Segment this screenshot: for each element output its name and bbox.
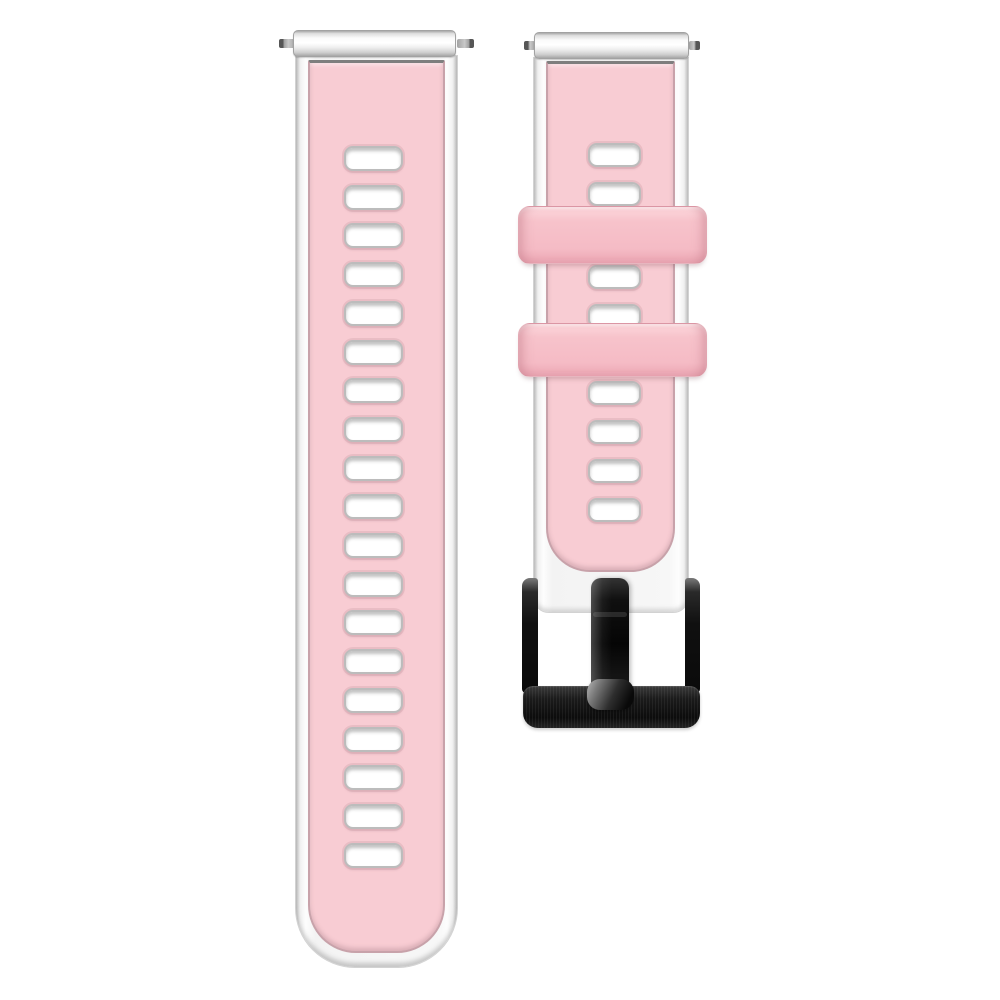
strap-vent-hole [344, 262, 403, 287]
strap-vent-hole [588, 143, 641, 167]
keeper-loop [518, 323, 707, 377]
strap-vent-hole [344, 572, 403, 597]
strap-vent-hole [344, 301, 403, 326]
strap-vent-hole [344, 804, 403, 829]
strap-vent-hole [344, 456, 403, 481]
strap-vent-hole [344, 223, 403, 248]
strap-vent-hole [344, 765, 403, 790]
strap-vent-hole [588, 265, 641, 289]
strap-vent-hole [344, 727, 403, 752]
strap-vent-hole [344, 340, 403, 365]
strap-vent-hole [344, 533, 403, 558]
right-strap [533, 32, 689, 732]
strap-vent-hole [344, 378, 403, 403]
left-strap [295, 30, 458, 970]
strap-vent-hole [344, 146, 403, 171]
product-photo-canvas [0, 0, 1000, 1000]
strap-white-base [295, 55, 458, 968]
spring-bar [293, 30, 456, 57]
spring-bar-pin-right-icon [689, 41, 700, 50]
strap-vent-hole [344, 688, 403, 713]
strap-vent-hole [588, 381, 641, 405]
strap-vent-hole [344, 649, 403, 674]
strap-vent-hole [344, 185, 403, 210]
strap-vent-hole [344, 494, 403, 519]
strap-vent-hole [588, 182, 641, 206]
buckle-arm-right [685, 578, 700, 693]
strap-vent-hole [588, 498, 641, 522]
keeper-loop [518, 206, 707, 264]
buckle-tang-tip [587, 679, 634, 710]
buckle-arm-left [522, 578, 538, 693]
strap-vent-hole [344, 417, 403, 442]
strap-vent-hole [588, 420, 641, 444]
strap-vent-hole [344, 843, 403, 868]
strap-vent-hole [344, 610, 403, 635]
spring-bar-pin-right-icon [457, 39, 474, 48]
spring-bar [534, 32, 689, 59]
strap-vent-hole [588, 459, 641, 483]
